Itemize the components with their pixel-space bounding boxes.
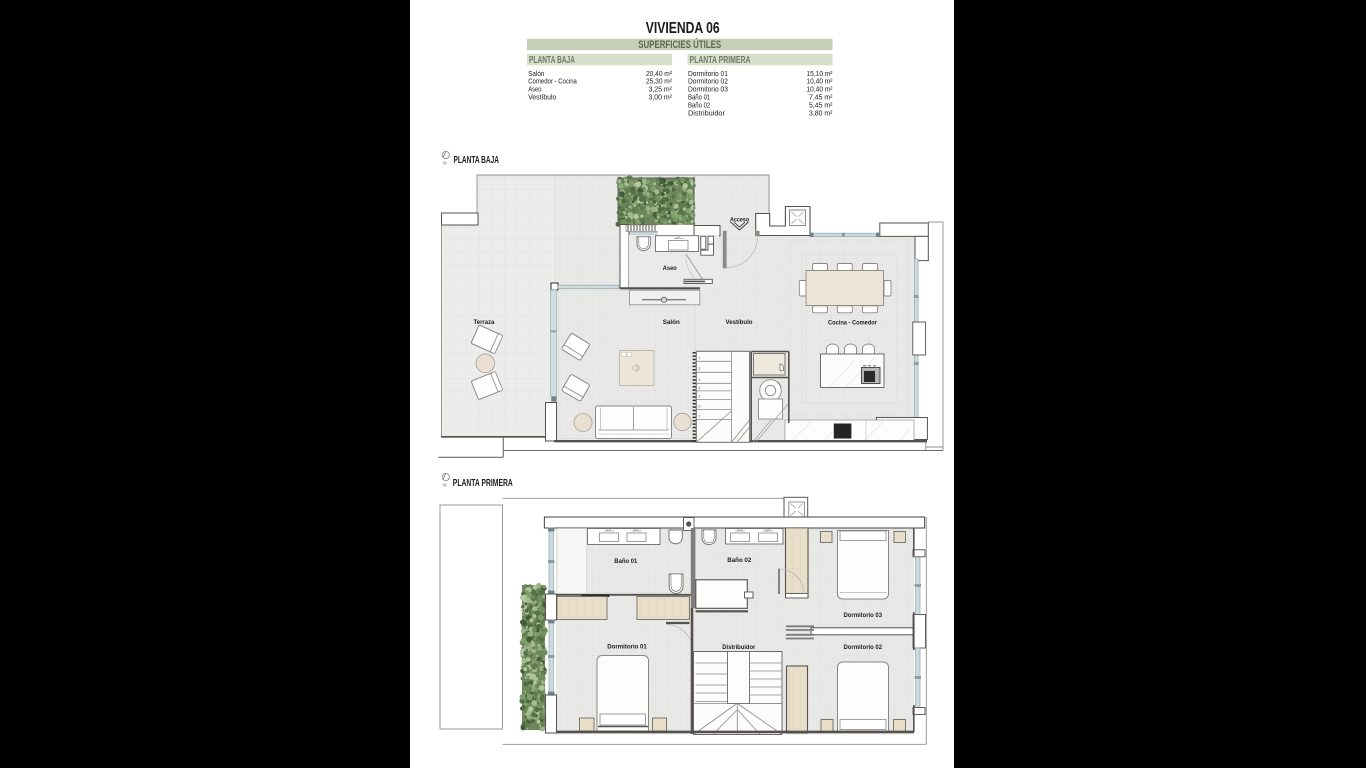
svg-text:PLANTA BAJA: PLANTA BAJA	[529, 54, 575, 66]
svg-text:N: N	[443, 161, 446, 166]
svg-text:6: 6	[699, 405, 701, 409]
svg-text:Dormitorio 03: Dormitorio 03	[844, 612, 883, 619]
svg-text:Acceso: Acceso	[730, 217, 749, 224]
svg-text:PLANTA BAJA: PLANTA BAJA	[454, 155, 500, 166]
svg-text:4: 4	[699, 386, 701, 390]
svg-text:VIVIENDA 06: VIVIENDA 06	[646, 20, 720, 37]
svg-text:N: N	[443, 483, 446, 488]
svg-text:3,00 m²: 3,00 m²	[649, 93, 673, 102]
svg-text:Terraza: Terraza	[474, 319, 495, 326]
svg-text:Vestíbulo: Vestíbulo	[528, 93, 556, 102]
svg-text:Vestíbulo: Vestíbulo	[726, 319, 753, 326]
svg-text:Aseo: Aseo	[663, 265, 677, 272]
svg-text:Dormitorio 02: Dormitorio 02	[844, 644, 883, 651]
svg-text:3,80 m²: 3,80 m²	[809, 108, 833, 117]
svg-text:Distribuidor: Distribuidor	[722, 644, 755, 651]
svg-text:Cocina - Comedor: Cocina - Comedor	[828, 320, 877, 327]
svg-text:2: 2	[699, 367, 701, 371]
svg-text:SUPERFICIES ÚTILES: SUPERFICIES ÚTILES	[638, 38, 721, 51]
svg-text:Salón: Salón	[663, 319, 680, 326]
svg-text:1: 1	[699, 356, 701, 360]
svg-text:7: 7	[699, 415, 701, 419]
svg-text:Distribuidor: Distribuidor	[688, 108, 726, 117]
svg-text:PLANTA PRIMERA: PLANTA PRIMERA	[690, 54, 751, 66]
svg-text:Baño 01: Baño 01	[614, 558, 637, 565]
svg-text:3: 3	[699, 378, 701, 382]
svg-text:5: 5	[699, 395, 701, 399]
svg-text:Baño 02: Baño 02	[727, 557, 751, 564]
svg-text:PLANTA PRIMERA: PLANTA PRIMERA	[453, 478, 513, 489]
svg-text:Dormitorio 01: Dormitorio 01	[607, 643, 647, 650]
